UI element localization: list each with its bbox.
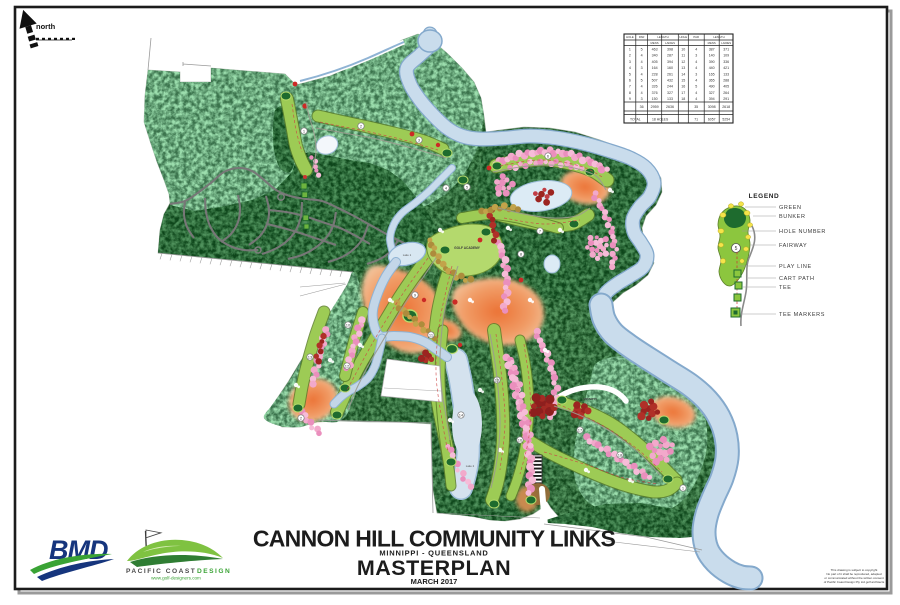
svg-text:TEE MARKERS: TEE MARKERS — [779, 312, 825, 318]
svg-text:4: 4 — [641, 60, 643, 64]
svg-text:12: 12 — [345, 364, 350, 369]
svg-text:16: 16 — [681, 85, 685, 89]
svg-text:228: 228 — [652, 72, 658, 76]
svg-text:GREEN: GREEN — [779, 205, 802, 211]
svg-text:160: 160 — [667, 66, 673, 70]
svg-text:Lake 2: Lake 2 — [466, 464, 475, 468]
svg-text:371: 371 — [723, 48, 729, 52]
svg-text:MARCH 2017: MARCH 2017 — [411, 577, 458, 586]
svg-text:2959: 2959 — [651, 105, 659, 109]
svg-text:15: 15 — [681, 79, 685, 83]
svg-text:LENGTH: LENGTH — [713, 35, 724, 39]
svg-text:11: 11 — [681, 54, 685, 58]
svg-text:CART PATH: CART PATH — [779, 276, 815, 282]
svg-text:LADIES: LADIES — [721, 41, 731, 45]
svg-text:LADIES: LADIES — [665, 41, 675, 45]
svg-text:394: 394 — [709, 97, 715, 101]
svg-text:35: 35 — [694, 105, 698, 109]
svg-text:TOTAL: TOTAL — [630, 118, 641, 122]
svg-text:1: 1 — [629, 48, 631, 52]
svg-text:340: 340 — [652, 54, 658, 58]
svg-text:150: 150 — [652, 97, 658, 101]
svg-text:BUNKER: BUNKER — [779, 214, 806, 220]
svg-text:MENS: MENS — [651, 41, 659, 45]
svg-text:north: north — [36, 22, 56, 31]
svg-text:4: 4 — [695, 60, 697, 64]
svg-text:7: 7 — [629, 85, 631, 89]
svg-text:4: 4 — [629, 66, 631, 70]
svg-text:440: 440 — [709, 66, 715, 70]
svg-text:3: 3 — [695, 54, 697, 58]
svg-text:4: 4 — [641, 85, 643, 89]
svg-text:PACIFIC COAST: PACIFIC COAST — [126, 568, 196, 575]
svg-text:165: 165 — [709, 72, 715, 76]
svg-text:365: 365 — [709, 79, 715, 83]
svg-text:PAR: PAR — [693, 35, 699, 39]
svg-text:HOLE: HOLE — [679, 35, 687, 39]
svg-text:5: 5 — [695, 85, 697, 89]
svg-text:2618: 2618 — [722, 105, 730, 109]
svg-text:18 HOLES: 18 HOLES — [652, 118, 669, 122]
svg-text:www.golf-designers.com: www.golf-designers.com — [151, 576, 201, 581]
svg-text:463: 463 — [652, 48, 658, 52]
svg-text:HOLE NUMBER: HOLE NUMBER — [779, 229, 826, 235]
svg-text:326: 326 — [652, 85, 658, 89]
svg-text:244: 244 — [667, 85, 673, 89]
svg-text:4: 4 — [695, 48, 697, 52]
svg-text:287: 287 — [667, 54, 673, 58]
svg-text:12: 12 — [681, 60, 685, 64]
svg-text:14: 14 — [681, 72, 685, 76]
svg-text:507: 507 — [652, 79, 658, 83]
svg-text:5: 5 — [735, 246, 738, 252]
svg-text:5254: 5254 — [722, 118, 730, 122]
svg-text:6057: 6057 — [708, 118, 716, 122]
svg-text:3: 3 — [695, 72, 697, 76]
svg-text:14: 14 — [459, 413, 464, 418]
svg-text:9: 9 — [629, 97, 631, 101]
svg-text:336: 336 — [723, 60, 729, 64]
svg-text:PAR: PAR — [639, 35, 645, 39]
svg-text:FAIRWAY: FAIRWAY — [779, 243, 807, 249]
svg-text:LEGEND: LEGEND — [749, 193, 780, 200]
svg-text:421: 421 — [723, 66, 729, 70]
svg-text:398: 398 — [667, 48, 673, 52]
svg-text:71: 71 — [694, 118, 698, 122]
svg-text:4: 4 — [641, 54, 643, 58]
svg-text:18: 18 — [681, 97, 685, 101]
svg-text:376: 376 — [652, 91, 658, 95]
svg-text:394: 394 — [667, 60, 673, 64]
svg-text:4: 4 — [641, 72, 643, 76]
svg-text:4: 4 — [695, 79, 697, 83]
svg-text:5: 5 — [629, 72, 631, 76]
svg-text:3: 3 — [629, 60, 631, 64]
svg-text:DESIGN: DESIGN — [197, 568, 231, 575]
svg-text:13: 13 — [308, 355, 313, 360]
svg-text:4: 4 — [641, 91, 643, 95]
svg-text:2636: 2636 — [666, 105, 674, 109]
svg-text:18: 18 — [618, 453, 623, 458]
svg-text:490: 490 — [709, 85, 715, 89]
svg-text:5: 5 — [641, 79, 643, 83]
svg-text:3: 3 — [641, 66, 643, 70]
svg-text:2: 2 — [629, 54, 631, 58]
svg-text:264: 264 — [723, 91, 729, 95]
svg-text:432: 432 — [667, 79, 673, 83]
svg-text:288: 288 — [723, 79, 729, 83]
svg-text:140: 140 — [709, 54, 715, 58]
svg-text:261: 261 — [667, 72, 673, 76]
svg-text:GOLF ACADEMY: GOLF ACADEMY — [454, 246, 481, 250]
svg-text:13: 13 — [681, 66, 685, 70]
svg-text:8: 8 — [629, 91, 631, 95]
svg-text:MENS: MENS — [708, 41, 716, 45]
svg-text:17: 17 — [681, 91, 685, 95]
svg-text:6: 6 — [629, 79, 631, 83]
svg-text:387: 387 — [709, 48, 715, 52]
svg-text:PLAY LINE: PLAY LINE — [779, 264, 812, 270]
svg-text:MINNIPPI: MINNIPPI — [583, 397, 597, 401]
svg-text:133: 133 — [723, 72, 729, 76]
svg-text:291: 291 — [723, 97, 729, 101]
svg-text:LENGTH: LENGTH — [657, 35, 668, 39]
svg-text:4: 4 — [695, 66, 697, 70]
svg-text:17: 17 — [578, 428, 583, 433]
svg-text:5: 5 — [641, 48, 643, 52]
svg-text:133: 133 — [667, 97, 673, 101]
svg-text:Lake 1: Lake 1 — [403, 253, 412, 257]
svg-text:405: 405 — [723, 85, 729, 89]
svg-text:3098: 3098 — [708, 105, 716, 109]
svg-text:16: 16 — [518, 438, 523, 443]
svg-text:4: 4 — [695, 91, 697, 95]
svg-text:405: 405 — [652, 60, 658, 64]
svg-text:327: 327 — [667, 91, 673, 95]
svg-text:4: 4 — [695, 97, 697, 101]
svg-text:10: 10 — [681, 48, 685, 52]
svg-text:164: 164 — [652, 66, 658, 70]
svg-text:327: 327 — [709, 91, 715, 95]
svg-text:of Pacific Coast Design Pty Lt: of Pacific Coast Design Pty Ltd golf arc… — [824, 580, 885, 584]
svg-text:HOLE: HOLE — [626, 35, 634, 39]
svg-text:390: 390 — [709, 60, 715, 64]
svg-text:TEE: TEE — [779, 285, 792, 291]
svg-text:109: 109 — [723, 54, 729, 58]
svg-text:36: 36 — [640, 105, 644, 109]
svg-text:10: 10 — [346, 323, 351, 328]
svg-text:3: 3 — [641, 97, 643, 101]
